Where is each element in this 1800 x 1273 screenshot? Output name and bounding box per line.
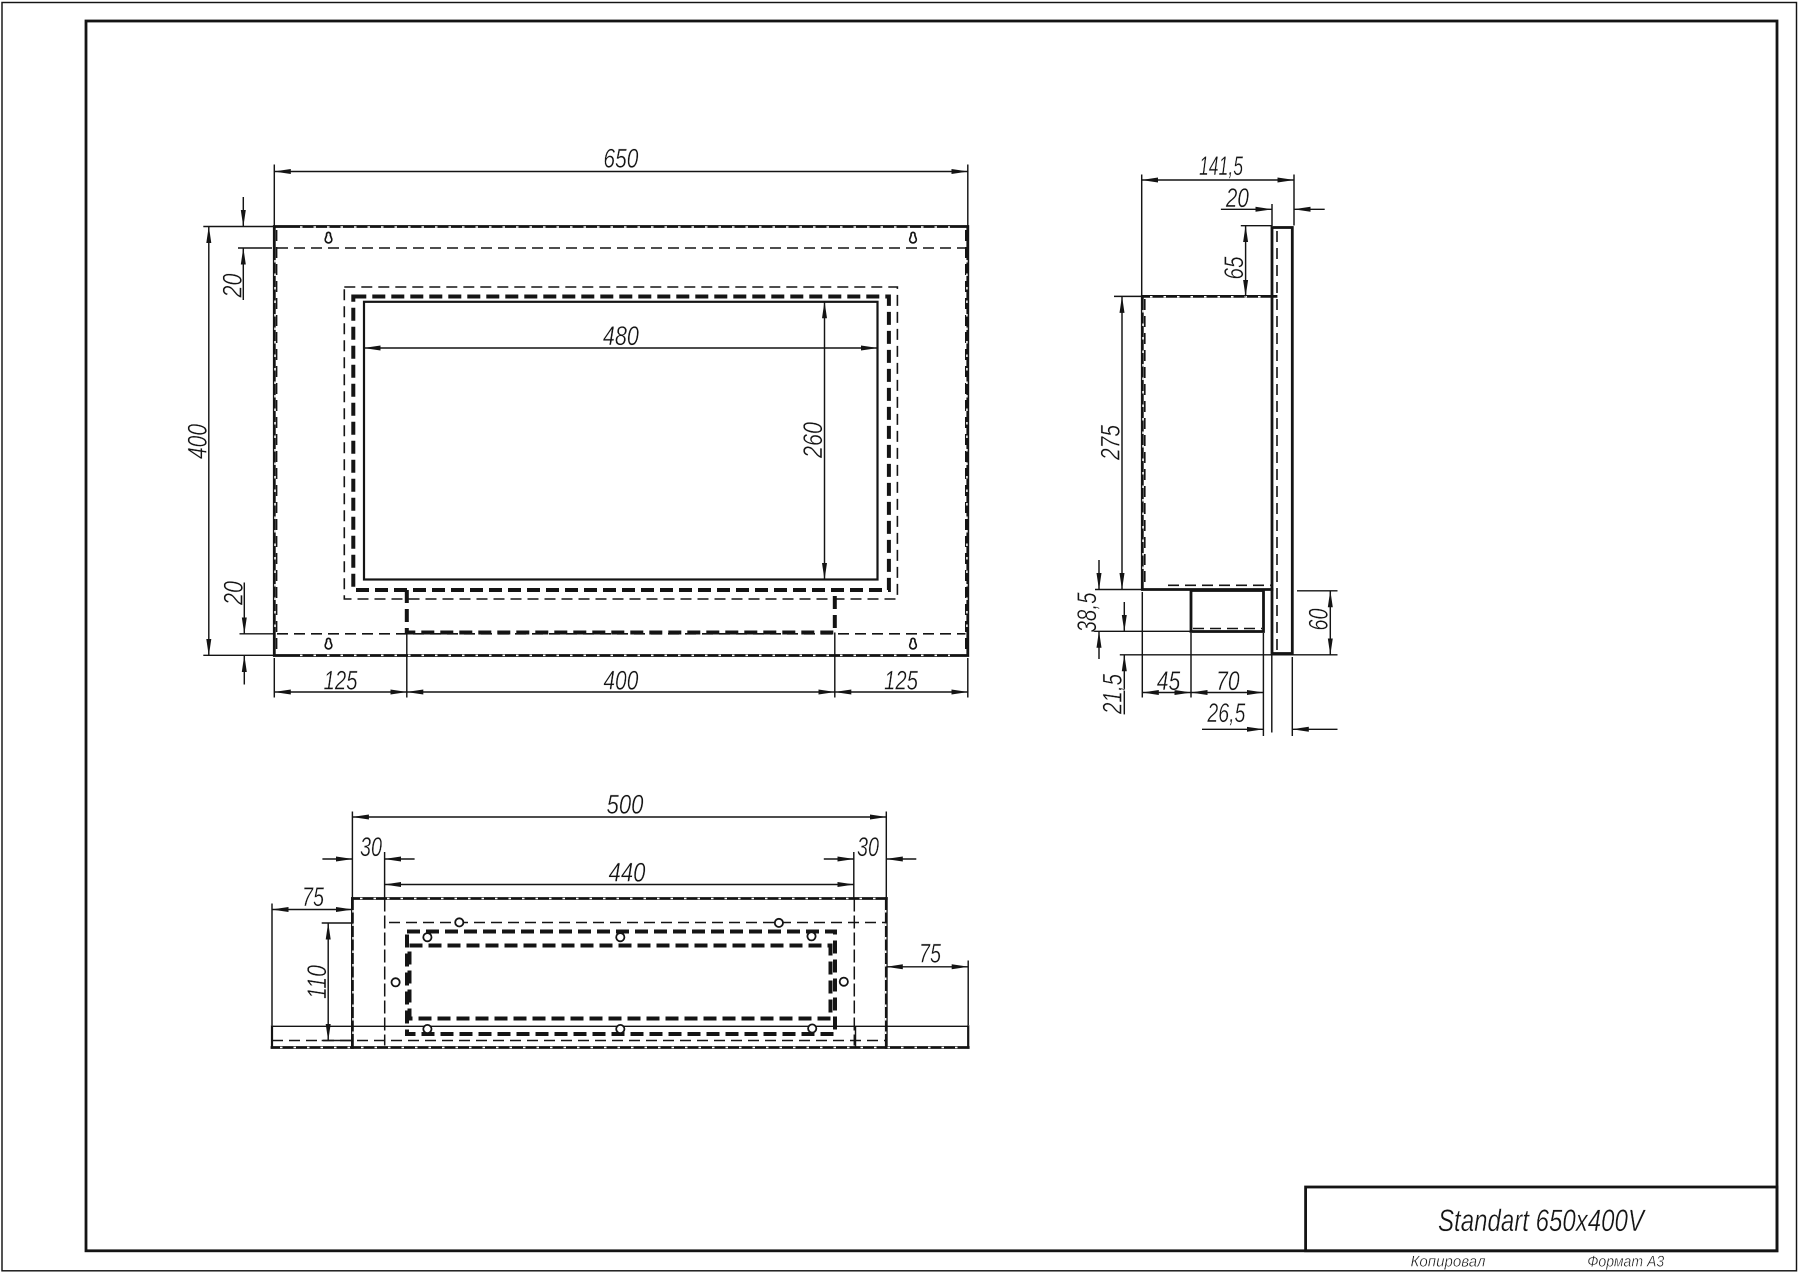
svg-text:21,5: 21,5 — [1097, 673, 1127, 715]
svg-text:45: 45 — [1157, 666, 1181, 696]
svg-text:110: 110 — [302, 965, 332, 999]
svg-text:Standart 650x400V: Standart 650x400V — [1438, 1203, 1647, 1238]
svg-text:275: 275 — [1096, 424, 1126, 461]
svg-text:480: 480 — [603, 321, 639, 351]
svg-text:125: 125 — [324, 666, 359, 696]
svg-text:Формат А3: Формат А3 — [1587, 1254, 1664, 1271]
svg-text:30: 30 — [360, 832, 382, 862]
svg-text:400: 400 — [603, 666, 638, 696]
svg-text:400: 400 — [182, 424, 212, 459]
svg-text:26,5: 26,5 — [1207, 698, 1246, 728]
svg-text:70: 70 — [1216, 666, 1240, 696]
svg-text:500: 500 — [607, 790, 644, 820]
svg-text:38,5: 38,5 — [1072, 592, 1102, 633]
svg-text:650: 650 — [603, 144, 638, 174]
svg-text:141,5: 141,5 — [1199, 151, 1244, 181]
svg-text:65: 65 — [1219, 256, 1249, 280]
svg-text:30: 30 — [857, 832, 879, 862]
svg-text:75: 75 — [919, 939, 942, 969]
svg-text:20: 20 — [218, 274, 248, 299]
svg-text:60: 60 — [1303, 609, 1333, 631]
svg-text:75: 75 — [302, 882, 325, 912]
svg-text:440: 440 — [609, 858, 646, 888]
svg-text:20: 20 — [219, 581, 249, 606]
svg-text:260: 260 — [798, 422, 828, 459]
svg-text:Копировал: Копировал — [1411, 1254, 1486, 1271]
svg-text:125: 125 — [884, 666, 919, 696]
svg-text:20: 20 — [1225, 183, 1249, 213]
